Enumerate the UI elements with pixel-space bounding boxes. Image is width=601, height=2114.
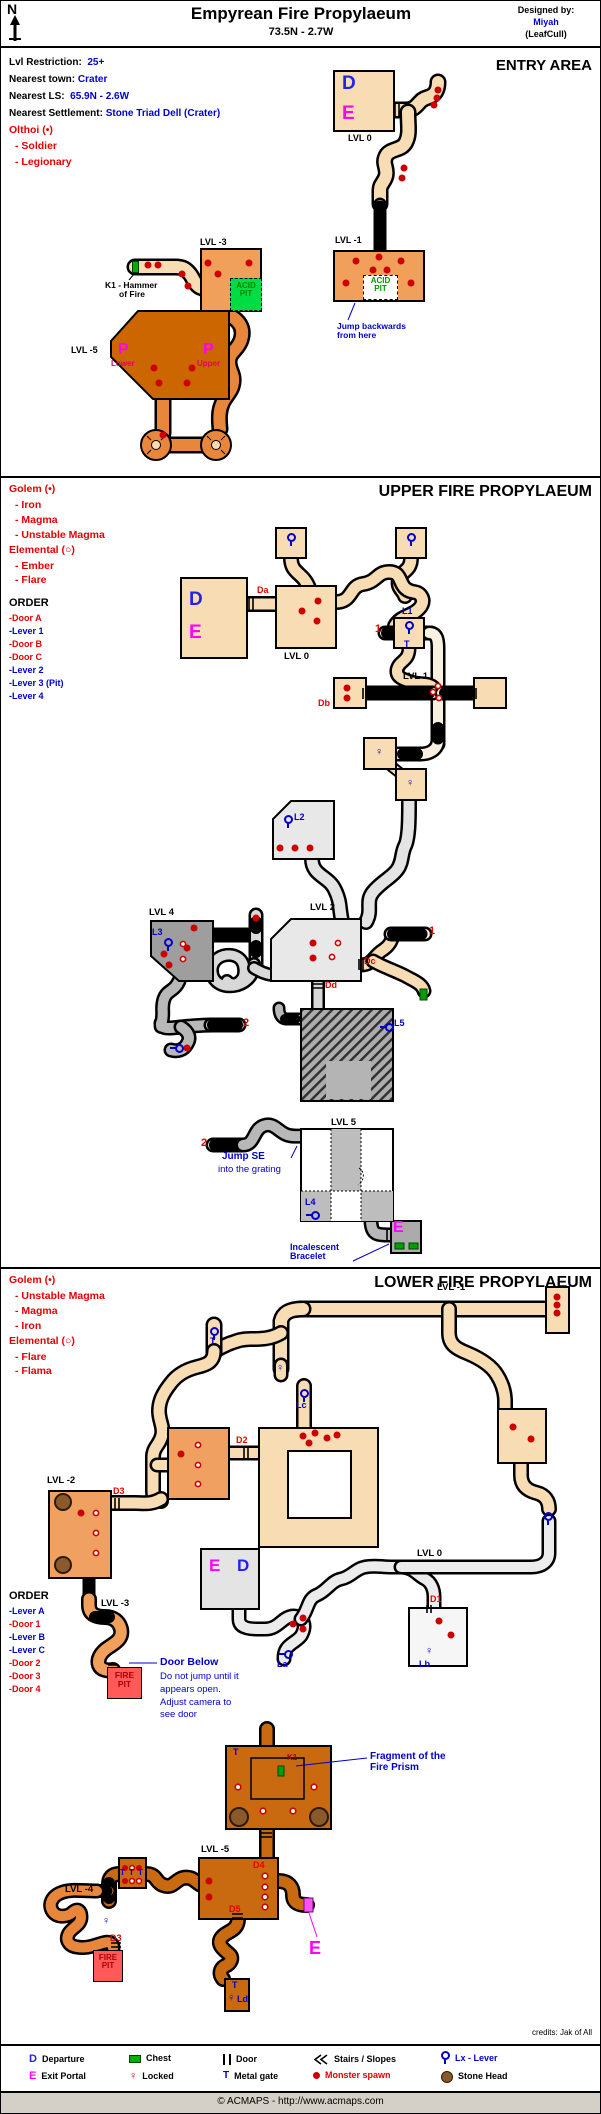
- lvl0-label: LVL 0: [348, 134, 372, 143]
- order-item: -Lever B: [9, 1633, 45, 1642]
- exit-letter: E: [342, 104, 355, 124]
- legend-departure-symbol: D: [29, 2054, 37, 2066]
- entry-monster-item: - Legionary: [15, 157, 72, 168]
- upper-monster-group: Golem (•): [9, 484, 55, 495]
- acid-pit-lvl-m1: ACID PIT: [363, 275, 398, 300]
- lever-icon: [287, 533, 296, 542]
- fragment-note: Fragment of theFire Prism: [370, 1752, 446, 1773]
- upper-monster-item: - Flare: [15, 575, 47, 586]
- bracelet-note: IncalescentBracelet: [290, 1243, 339, 1262]
- legend-departure-label: Departure: [42, 2055, 85, 2064]
- order-item: -Lever C: [9, 1646, 45, 1655]
- ld-label: Ld: [237, 1995, 248, 2004]
- ed-d-letter: D: [237, 1557, 249, 1575]
- jump-se-note: Jump SE: [222, 1152, 265, 1163]
- legend-chest-label: Chest: [146, 2054, 171, 2063]
- gate-t-label: T: [210, 1337, 216, 1346]
- door-below-title: Door Below: [160, 1657, 218, 1668]
- jump-backwards-note: Jump backwardsfrom here: [337, 322, 406, 340]
- lever-icon: [405, 621, 414, 630]
- lvl-m2-label: LVL -2: [47, 1476, 75, 1486]
- stairs-2-label: 2: [243, 1018, 249, 1030]
- d2-label: D2: [236, 1436, 248, 1445]
- info-nearest-town: Nearest town: Crater: [9, 75, 107, 86]
- chest-k1-icon: [132, 261, 139, 273]
- stairs-1-label: 1: [375, 624, 381, 636]
- lower-monster-group: Golem (•): [9, 1275, 55, 1286]
- section-title-upper: UPPER FIRE PROPYLAEUM: [379, 484, 592, 501]
- la-label: La: [277, 1660, 288, 1669]
- prism-portal: [304, 1898, 313, 1912]
- lock-icon: ♀: [276, 1362, 284, 1374]
- lower-monster-item: - Iron: [15, 1321, 41, 1332]
- lever-icon: [210, 1327, 219, 1336]
- order-item: -Door 1: [9, 1620, 41, 1629]
- lever-icon: [441, 2051, 450, 2060]
- order-item: -Lever 1: [9, 627, 44, 636]
- metal-gate-icon: T: [223, 2071, 229, 2082]
- door-a-label: Da: [257, 586, 269, 595]
- footer-text: © ACMAPS - http://www.acmaps.com: [1, 2097, 600, 2108]
- locked-icon: ♀: [129, 2071, 137, 2083]
- exit-letter: E: [393, 1220, 404, 1237]
- k1-hammer-label: K1 - Hammerof Fire: [105, 281, 157, 299]
- page-coords: 73.5N - 2.7W: [101, 27, 501, 39]
- gate-t-label: T: [138, 1869, 143, 1877]
- upper-monster-item: - Unstable Magma: [15, 530, 105, 541]
- info-nearest-settlement: Nearest Settlement: Stone Triad Dell (Cr…: [9, 109, 220, 120]
- lever-icon: [300, 1389, 309, 1398]
- gate-t-label: T: [233, 1748, 239, 1757]
- entry-monster-group: Olthoi (•): [9, 125, 53, 136]
- lvl5-label: LVL 5: [331, 1118, 356, 1128]
- designer-name: Miyah: [496, 18, 596, 27]
- p-upper-letter: P: [203, 342, 214, 359]
- door-b-label: Db: [318, 699, 330, 708]
- lock-icon: ♀: [227, 1992, 235, 2004]
- legend-locked-label: Locked: [142, 2072, 174, 2081]
- lever-icon: [284, 815, 293, 824]
- legend-exit-label: Exit Portal: [41, 2072, 86, 2081]
- legend-monster-spawn-label: Monster spawn: [325, 2071, 391, 2080]
- chest-icon: [129, 2055, 141, 2063]
- lever-icon: [175, 1044, 184, 1053]
- lvl-m5-label: LVL -5: [71, 346, 98, 355]
- p-upper-sub: Upper: [197, 360, 220, 368]
- lvl0-label: LVL 0: [417, 1549, 442, 1559]
- upper-monster-group2: Elemental (○): [9, 545, 75, 556]
- order-item: -Door 2: [9, 1659, 41, 1668]
- footer: © ACMAPS - http://www.acmaps.com: [1, 2091, 600, 2114]
- l4-label: L4: [305, 1198, 316, 1207]
- section-title-entry: ENTRY AREA: [496, 58, 592, 74]
- door-d-label: Dd: [325, 981, 337, 990]
- exit-letter: E: [309, 1939, 321, 1958]
- order-item: -Door B: [9, 640, 42, 649]
- d5-label: D5: [229, 1905, 241, 1914]
- lvl0-label: LVL 0: [284, 652, 309, 662]
- order-item: -Lever 4: [9, 692, 44, 701]
- legend: D Departure E Exit Portal Chest ♀ Locked…: [1, 2044, 600, 2093]
- d3-label: D3: [113, 1487, 125, 1496]
- stairs-icon: [313, 2054, 329, 2065]
- departure-letter: D: [342, 74, 356, 94]
- order-item: -Door C: [9, 653, 42, 662]
- header: N Empyrean Fire Propylaeum 73.5N - 2.7W …: [1, 1, 600, 46]
- l1-label: L1: [402, 607, 413, 616]
- order-item: -Lever 2: [9, 666, 44, 675]
- compass-arrow-icon: [2, 15, 26, 45]
- lvl-m3-label: LVL -3: [200, 238, 227, 247]
- d3-label: D3: [110, 1934, 122, 1943]
- acmaps-dungeon-map: N Empyrean Fire Propylaeum 73.5N - 2.7W …: [0, 0, 601, 2114]
- stairs-2-label: 2: [201, 1138, 207, 1150]
- lever-icon: [311, 1211, 320, 1220]
- lock-icon: ♀: [102, 1915, 110, 1927]
- lever-icon: [164, 938, 173, 947]
- upper-map-svg: [1, 478, 600, 1267]
- lvl4-label: LVL 4: [149, 908, 174, 918]
- p-lower-sub: Lower: [111, 360, 135, 368]
- lower-monster-item: - Magma: [15, 1306, 58, 1317]
- gate-t-label: T: [129, 1869, 134, 1877]
- legend-stone-head-label: Stone Head: [458, 2072, 508, 2081]
- fire-pit-1: FIRE PIT: [107, 1667, 142, 1699]
- lever-icon: [284, 1650, 293, 1659]
- p-lower-letter: P: [118, 342, 129, 359]
- l2-label: L2: [294, 813, 305, 822]
- legend-stairs-label: Stairs / Slopes: [334, 2055, 396, 2064]
- k1-label: K1: [287, 1754, 297, 1762]
- legend-lever-label: Lx - Lever: [455, 2054, 498, 2063]
- door-c-label: Dc: [364, 957, 376, 966]
- legend-exit-symbol: E: [29, 2071, 36, 2083]
- lower-monster-item: - Flama: [15, 1366, 52, 1377]
- gate-t-label: T: [404, 640, 410, 649]
- monster-spawn-icon: [313, 2072, 320, 2079]
- order-item: -Lever 3 (Pit): [9, 679, 64, 688]
- stone-head-icon: [441, 2071, 453, 2083]
- order-item: -Door 4: [9, 1685, 41, 1694]
- lock-icon: ♀: [375, 746, 383, 758]
- lvl-m1-label: LVL -1: [335, 236, 362, 245]
- order-title-lower: ORDER: [9, 1591, 49, 1603]
- upper-monster-item: - Magma: [15, 515, 58, 526]
- lower-section: Golem (•) - Unstable Magma - Magma - Iro…: [1, 1267, 600, 2046]
- lower-monster-item: - Unstable Magma: [15, 1291, 105, 1302]
- section-title-lower: LOWER FIRE PROPYLAEUM: [374, 1275, 592, 1292]
- designed-by-label: Designed by:: [496, 6, 596, 15]
- lc-label: Lc: [296, 1401, 307, 1410]
- legend-metal-gate-label: Metal gate: [234, 2072, 278, 2081]
- upper-order-title: ORDER: [9, 598, 49, 610]
- l3-label: L3: [152, 928, 163, 937]
- fire-pit-2: FIRE PIT: [93, 1950, 123, 1982]
- lvl-m4-label: LVL -4: [65, 1885, 93, 1895]
- info-lvl-restriction: Lvl Restriction: 25+: [9, 58, 104, 69]
- lower-map-svg: [1, 1269, 600, 2046]
- d4-label: D4: [253, 1861, 265, 1870]
- lvl-m1-label: LVL -1: [437, 1283, 465, 1293]
- entry-monster-item: - Soldier: [15, 141, 57, 152]
- jump-se-note2: into the grating: [218, 1165, 281, 1175]
- departure-letter: D: [189, 590, 203, 610]
- legend-door-label: Door: [236, 2055, 257, 2064]
- order-item: -Lever A: [9, 1607, 45, 1616]
- lever-icon: [385, 1023, 394, 1032]
- gate-t-label: T: [120, 1869, 125, 1877]
- l5-label: L5: [394, 1019, 405, 1028]
- exit-letter: E: [189, 623, 202, 643]
- order-item: -Door A: [9, 614, 42, 623]
- lvl1-label: LVL 1: [403, 672, 428, 682]
- upper-monster-item: - Iron: [15, 500, 41, 511]
- lvl2-label: LVL 2: [310, 903, 335, 913]
- stairs-1-label: 1: [429, 926, 435, 938]
- lever-icon: [407, 533, 416, 542]
- upper-monster-item: - Ember: [15, 561, 54, 572]
- lb-label: Lb: [419, 1660, 430, 1669]
- lever-icon: [544, 1512, 553, 1521]
- ed-e-letter: E: [209, 1557, 220, 1575]
- gate-t-label: T: [232, 1981, 238, 1990]
- order-item: -Door 3: [9, 1672, 41, 1681]
- door-below-text: Do not jump until itappears open.Adjust …: [160, 1671, 239, 1722]
- lock-icon: ♀: [406, 777, 414, 789]
- lvl-m3-label: LVL -3: [101, 1599, 129, 1609]
- entry-area-section: Lvl Restriction: 25+ Nearest town: Crate…: [1, 46, 600, 476]
- lower-monster-item: - Flare: [15, 1352, 47, 1363]
- designer-guild: (LeafCull): [496, 30, 596, 39]
- chest-k1-fragment: [278, 1766, 284, 1776]
- lvl-m5-label: LVL -5: [201, 1845, 229, 1855]
- acid-pit-lvl-m3: ACID PIT: [230, 278, 262, 311]
- door-icon: [223, 2054, 231, 2065]
- page-title: Empyrean Fire Propylaeum: [101, 5, 501, 23]
- lower-monster-group2: Elemental (○): [9, 1336, 75, 1347]
- lock-icon: ♀: [425, 1645, 433, 1657]
- d1-label: D1: [430, 1595, 442, 1604]
- upper-section: Golem (•) - Iron - Magma - Unstable Magm…: [1, 476, 600, 1267]
- info-nearest-ls: Nearest LS: 65.9N - 2.6W: [9, 92, 129, 103]
- credits-text: credits: Jak of All: [532, 2029, 592, 2037]
